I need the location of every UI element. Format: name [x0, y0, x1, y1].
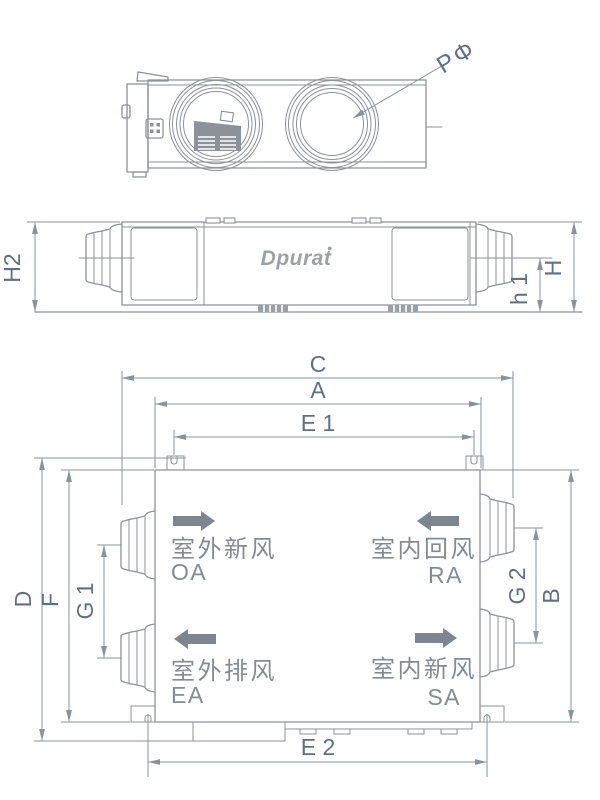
diameter-label: PΦ: [432, 35, 481, 79]
mounting-feet: [258, 305, 418, 312]
flange-knob: [122, 105, 130, 118]
dim-label-e1: E 1: [301, 410, 336, 436]
top-clip: [370, 218, 381, 223]
left-flange: [127, 84, 148, 172]
dim-label-d: D: [10, 591, 36, 608]
top-view: PΦ: [122, 35, 481, 177]
flow-arrow-oa: [173, 511, 215, 531]
duct-collar-oa: [121, 511, 155, 579]
dimension-e1: E 1: [174, 410, 474, 455]
dimension-g1: G 1: [72, 545, 104, 658]
flow-arrow-ea: [174, 629, 216, 649]
mounting-bracket-bottom-right: [480, 706, 504, 722]
fan-tab: [220, 111, 233, 122]
top-clip: [206, 218, 220, 223]
top-view-body: [148, 80, 426, 168]
port-code-ra: RA: [428, 562, 463, 588]
dim-label-f: F: [37, 593, 63, 607]
fan-motor: [194, 121, 241, 151]
dim-label-h: H: [540, 260, 566, 277]
duct-collar-sa: [480, 609, 514, 677]
dim-label-b: B: [538, 588, 564, 603]
hrv-dimension-drawing: PΦ: [0, 0, 600, 800]
top-clip: [224, 218, 235, 223]
port-label-sa: 室内新风: [371, 656, 477, 683]
flange-foot: [133, 172, 146, 177]
junction-box: [193, 722, 285, 741]
mounting-bracket-top-right: [466, 456, 483, 470]
fan-port: [170, 78, 263, 171]
dim-label-g1: G 1: [72, 582, 98, 619]
fan-module-panel: [131, 228, 197, 300]
dim-label-e2: E 2: [301, 734, 336, 760]
flow-arrow-ra: [417, 511, 459, 531]
drawing-canvas: PΦ: [0, 0, 600, 800]
dimension-h1: h 1: [506, 258, 540, 312]
dim-label-g2: G 2: [504, 567, 530, 604]
open-port: [286, 78, 379, 171]
side-view: Dpurat ● H2 H h 1: [0, 218, 582, 312]
bottom-view: 室外新风 OA 室内回风 RA 室外排风 EA 室内新风 SA C A E 1: [10, 351, 579, 777]
dim-label-c: C: [310, 351, 327, 377]
mounting-bracket-bottom-left: [131, 706, 155, 722]
port-code-oa: OA: [171, 559, 207, 585]
duct-collar-ea: [121, 624, 155, 692]
bottom-panel-strip: [285, 722, 472, 729]
side-duct-collar-left: [79, 224, 134, 292]
brand-logo: Dpurat: [261, 247, 332, 270]
dimension-e2: E 2: [148, 714, 487, 777]
port-label-ea: 室外排风: [171, 658, 277, 685]
dimension-b: B: [481, 470, 579, 722]
port-code-sa: SA: [427, 684, 461, 710]
dim-label-h2: H2: [0, 253, 25, 282]
top-clip: [352, 218, 366, 223]
flow-arrow-sa: [415, 628, 457, 648]
filter-panel: [392, 228, 468, 300]
dim-label-a: A: [310, 377, 326, 403]
duct-collar-ra: [480, 494, 514, 562]
registered-mark: ●: [327, 243, 332, 253]
port-code-ea: EA: [171, 682, 205, 708]
dim-label-h1: h 1: [506, 273, 532, 305]
port-label-ra: 室内回风: [371, 536, 477, 563]
dimension-g2: G 2: [504, 528, 536, 643]
diameter-leader: [353, 63, 447, 118]
